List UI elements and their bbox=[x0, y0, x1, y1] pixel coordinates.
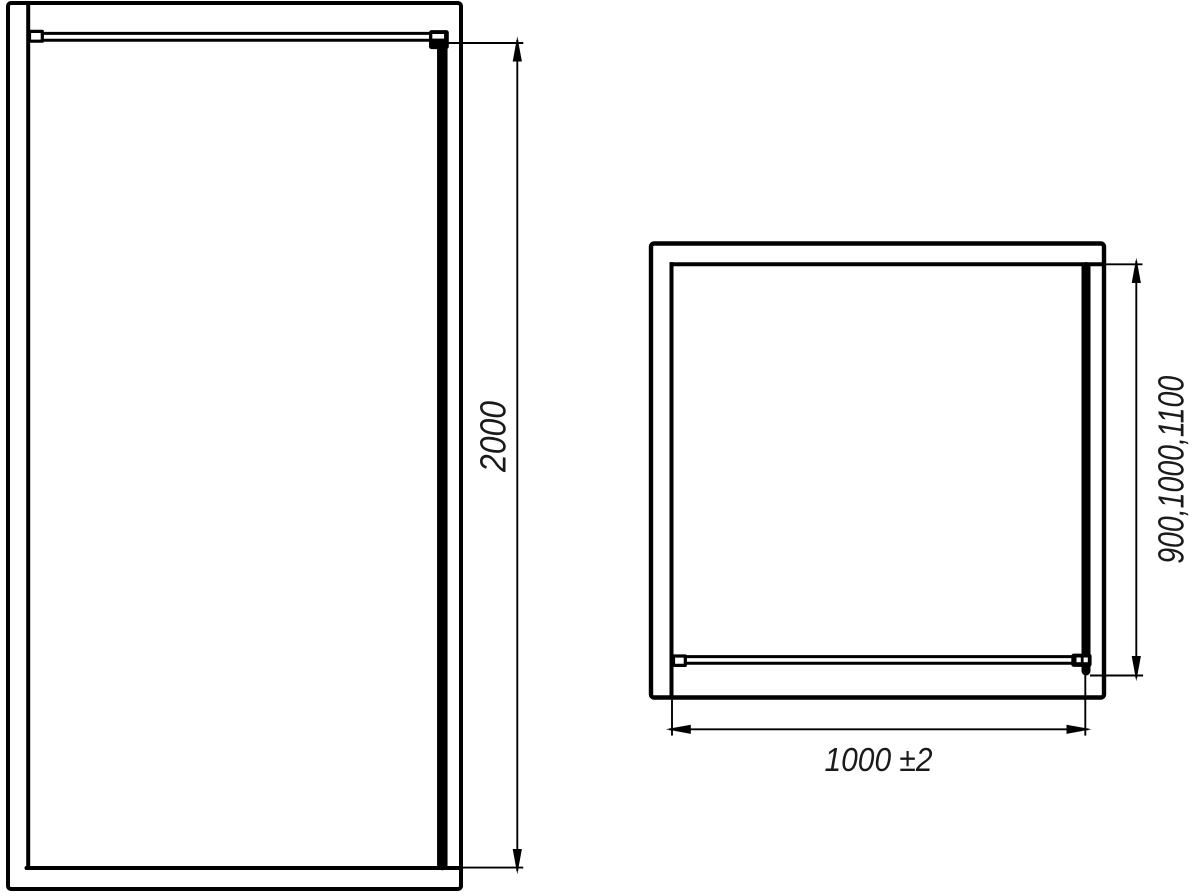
svg-text:1000 ±2: 1000 ±2 bbox=[825, 741, 933, 778]
svg-text:900,1000,1100: 900,1000,1100 bbox=[1151, 376, 1192, 564]
svg-text:2000: 2000 bbox=[473, 401, 514, 473]
